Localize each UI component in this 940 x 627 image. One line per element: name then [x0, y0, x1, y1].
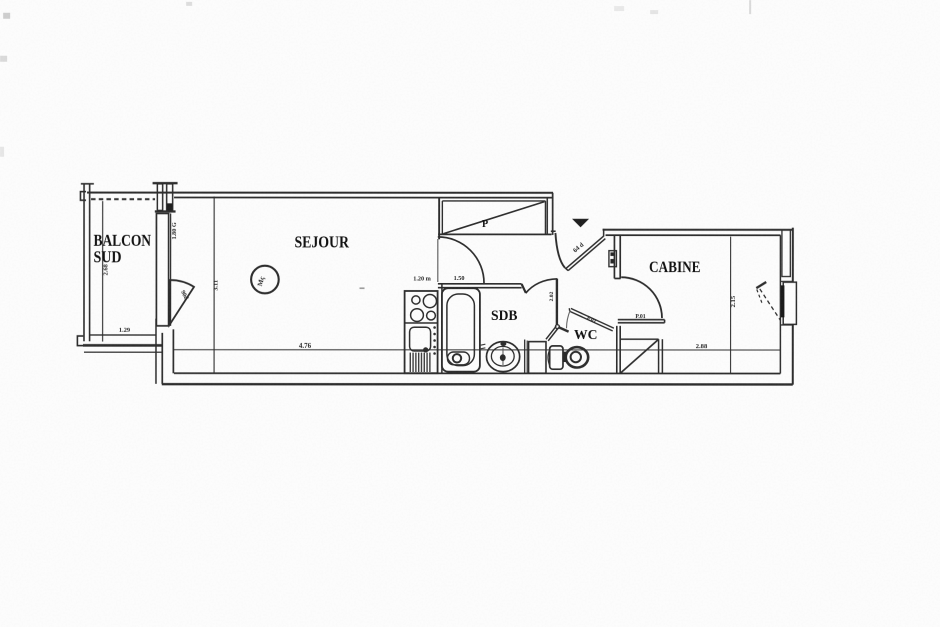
svg-text:P.01: P.01: [635, 314, 645, 320]
svg-text:1.50: 1.50: [454, 275, 465, 282]
svg-text:1.29: 1.29: [119, 327, 130, 334]
svg-text:2.15: 2.15: [730, 295, 737, 307]
svg-text:1.80 G: 1.80 G: [171, 222, 178, 239]
svg-text:CABINE: CABINE: [649, 259, 701, 276]
svg-text:WC: WC: [574, 328, 598, 343]
svg-text:2.88: 2.88: [696, 343, 708, 350]
svg-text:1.20 m: 1.20 m: [413, 276, 431, 283]
svg-text:4.76: 4.76: [299, 342, 312, 350]
svg-text:2.68: 2.68: [103, 264, 110, 275]
svg-text:3.11: 3.11: [213, 280, 220, 291]
svg-text:SDB: SDB: [491, 308, 518, 324]
svg-text:2.02: 2.02: [549, 291, 555, 301]
svg-text:P: P: [482, 219, 488, 230]
svg-text:SUD: SUD: [94, 247, 122, 266]
svg-text:SEJOUR: SEJOUR: [295, 232, 350, 251]
